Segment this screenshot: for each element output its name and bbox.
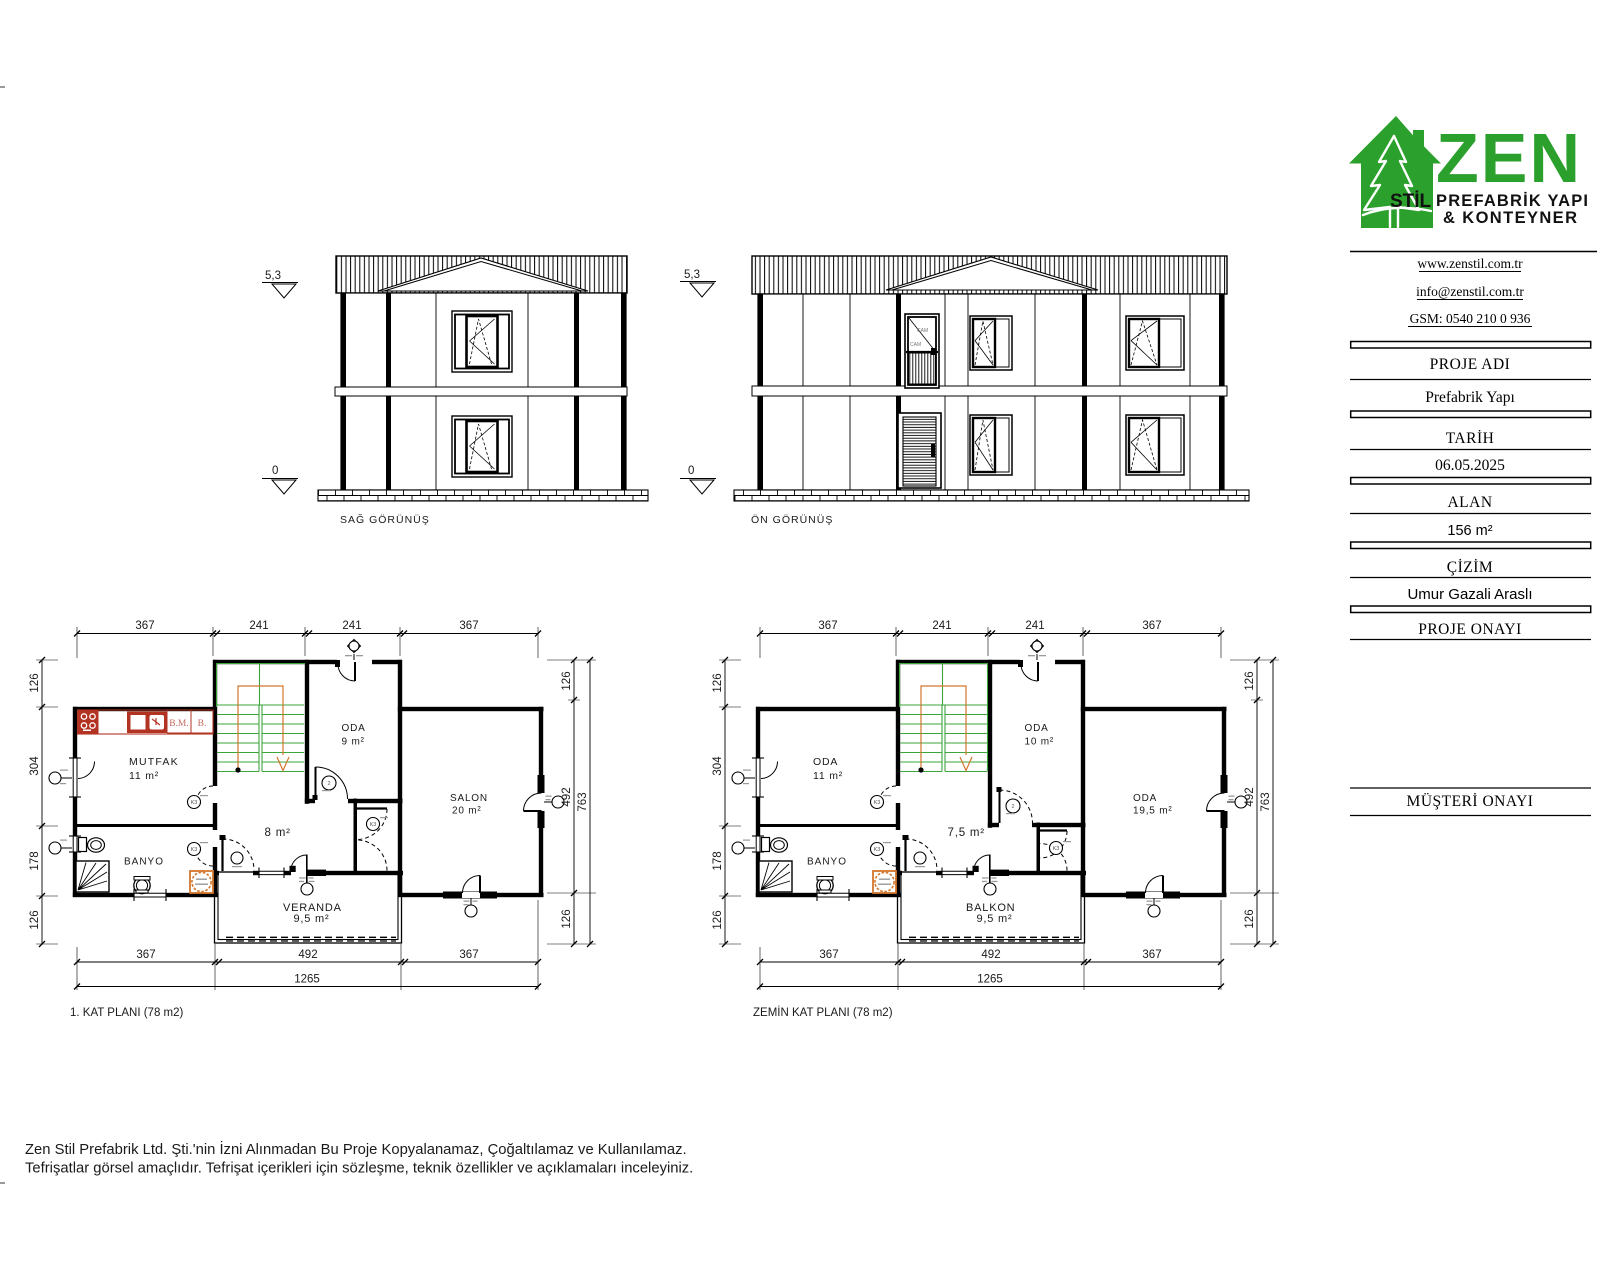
- svg-text:492: 492: [981, 949, 1000, 961]
- svg-text:20 m²: 20 m²: [452, 806, 482, 817]
- svg-text:MUTFAK: MUTFAK: [129, 756, 179, 768]
- svg-text:1265: 1265: [294, 974, 320, 986]
- svg-text:1265: 1265: [977, 974, 1003, 986]
- svg-text:K3: K3: [1053, 846, 1060, 852]
- svg-text:PROJE ADI: PROJE ADI: [1430, 356, 1511, 373]
- svg-text:367: 367: [136, 949, 155, 961]
- svg-text:ALAN: ALAN: [1447, 494, 1492, 511]
- svg-text:492: 492: [1244, 787, 1256, 806]
- svg-text:5,3: 5,3: [684, 269, 700, 281]
- svg-text:241: 241: [1025, 620, 1044, 632]
- svg-text:9,5 m²: 9,5 m²: [977, 913, 1013, 925]
- svg-text:K3: K3: [191, 847, 198, 853]
- svg-text:info@zenstil.com.tr: info@zenstil.com.tr: [1416, 284, 1524, 299]
- svg-text:PREFABRİK YAPI: PREFABRİK YAPI: [1436, 192, 1588, 210]
- svg-text:GSM: 0540 210 0 936: GSM: 0540 210 0 936: [1410, 311, 1531, 326]
- svg-text:9,5 m²: 9,5 m²: [294, 913, 330, 925]
- svg-text:241: 241: [249, 620, 268, 632]
- svg-text:5,3: 5,3: [265, 270, 281, 282]
- svg-text:126: 126: [561, 909, 573, 928]
- svg-text:763: 763: [577, 792, 589, 811]
- svg-text:126: 126: [29, 673, 41, 692]
- svg-text:ODA: ODA: [1133, 793, 1157, 804]
- svg-text:11 m²: 11 m²: [129, 770, 159, 782]
- svg-text:B.: B.: [198, 719, 207, 729]
- svg-text:126: 126: [712, 910, 724, 929]
- svg-text:ZEN: ZEN: [1436, 119, 1582, 197]
- svg-text:19,5 m²: 19,5 m²: [1133, 806, 1173, 817]
- svg-text:B.M.: B.M.: [169, 719, 189, 729]
- svg-text:8 m²: 8 m²: [265, 827, 291, 839]
- svg-text:7,5 m²: 7,5 m²: [948, 827, 985, 839]
- svg-text:CAM: CAM: [917, 328, 928, 334]
- svg-text:K3: K3: [874, 800, 881, 806]
- svg-text:126: 126: [1244, 671, 1256, 690]
- svg-text:304: 304: [712, 756, 724, 776]
- svg-text:STİL: STİL: [1390, 191, 1432, 212]
- svg-text:126: 126: [712, 673, 724, 692]
- svg-text:126: 126: [1244, 909, 1256, 928]
- svg-text:& KONTEYNER: & KONTEYNER: [1443, 209, 1577, 227]
- svg-text:178: 178: [29, 851, 41, 870]
- svg-text:TARİH: TARİH: [1446, 430, 1495, 447]
- svg-text:126: 126: [29, 910, 41, 929]
- svg-text:SAĞ GÖRÜNÜŞ: SAĞ GÖRÜNÜŞ: [340, 513, 430, 526]
- svg-text:367: 367: [1142, 620, 1161, 632]
- svg-text:K3: K3: [370, 822, 377, 828]
- svg-text:ODA: ODA: [813, 756, 838, 768]
- svg-text:763: 763: [1260, 792, 1272, 811]
- svg-text:MÜŞTERİ ONAYI: MÜŞTERİ ONAYI: [1407, 793, 1534, 810]
- svg-text:06.05.2025: 06.05.2025: [1435, 457, 1505, 474]
- svg-text:367: 367: [819, 949, 838, 961]
- svg-text:BANYO: BANYO: [807, 857, 847, 868]
- svg-text:304: 304: [29, 756, 41, 776]
- svg-text:0: 0: [272, 465, 278, 477]
- svg-text:ÖN GÖRÜNÜŞ: ÖN GÖRÜNÜŞ: [751, 514, 833, 526]
- svg-text:ODA: ODA: [342, 723, 366, 734]
- svg-text:126: 126: [561, 671, 573, 690]
- svg-text:Zen Stil Prefabrik Ltd. Şti.'n: Zen Stil Prefabrik Ltd. Şti.'nin İzni Al…: [25, 1140, 687, 1158]
- svg-text:11 m²: 11 m²: [813, 770, 843, 782]
- svg-text:1. KAT PLANI (78 m2): 1. KAT PLANI (78 m2): [70, 1007, 184, 1019]
- svg-text:367: 367: [459, 620, 478, 632]
- svg-text:156 m²: 156 m²: [1447, 523, 1492, 539]
- svg-text:ÇİZİM: ÇİZİM: [1447, 559, 1493, 576]
- svg-text:241: 241: [342, 620, 361, 632]
- svg-text:2: 2: [1011, 804, 1014, 810]
- svg-text:0: 0: [688, 465, 694, 477]
- svg-text:367: 367: [135, 620, 154, 632]
- svg-text:492: 492: [561, 787, 573, 806]
- svg-text:Prefabrik Yapı: Prefabrik Yapı: [1425, 389, 1515, 406]
- svg-text:CAM: CAM: [910, 342, 921, 348]
- svg-text:www.zenstil.com.tr: www.zenstil.com.tr: [1417, 256, 1523, 271]
- svg-text:492: 492: [298, 949, 317, 961]
- svg-text:10 m²: 10 m²: [1025, 737, 1055, 748]
- svg-text:K3: K3: [191, 800, 198, 806]
- svg-text:9 m²: 9 m²: [342, 737, 365, 748]
- svg-text:2: 2: [327, 781, 330, 787]
- svg-text:Tefrişatlar görsel amaçlıdır.: Tefrişatlar görsel amaçlıdır. Tefrişat i…: [25, 1161, 693, 1177]
- svg-text:SALON: SALON: [450, 793, 488, 804]
- svg-text:367: 367: [818, 620, 837, 632]
- svg-text:241: 241: [932, 620, 951, 632]
- svg-text:K3: K3: [874, 847, 881, 853]
- svg-text:ZEMİN KAT PLANI (78 m2): ZEMİN KAT PLANI (78 m2): [753, 1006, 893, 1019]
- svg-text:BANYO: BANYO: [124, 857, 164, 868]
- svg-text:367: 367: [1142, 949, 1161, 961]
- svg-text:ODA: ODA: [1025, 723, 1049, 734]
- svg-text:178: 178: [712, 851, 724, 870]
- svg-text:Umur Gazali Araslı: Umur Gazali Araslı: [1407, 586, 1532, 603]
- svg-text:367: 367: [459, 949, 478, 961]
- svg-text:PROJE ONAYI: PROJE ONAYI: [1418, 621, 1522, 638]
